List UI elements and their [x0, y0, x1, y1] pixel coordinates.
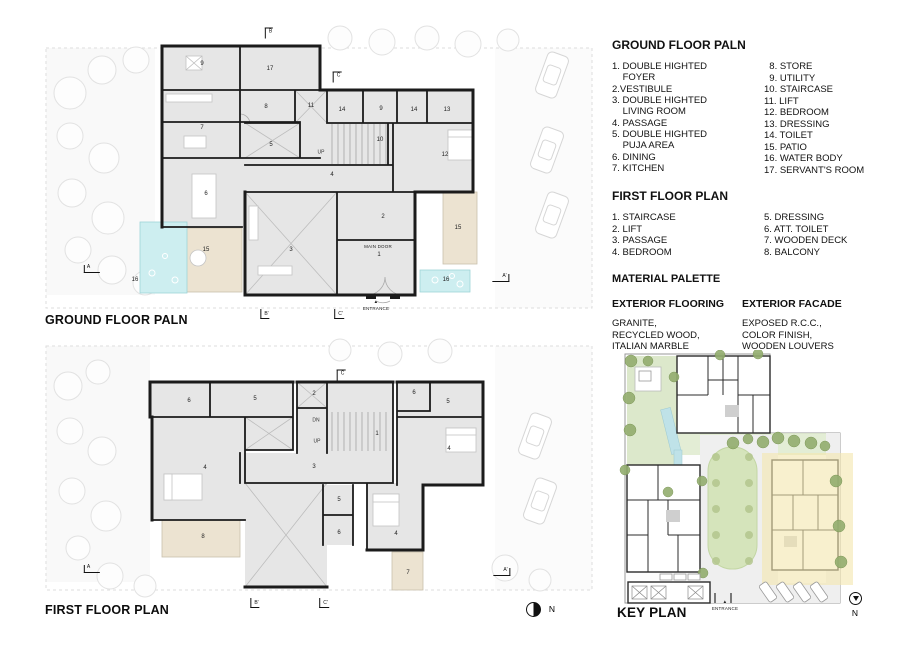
legend-item: 15. PATIO	[764, 142, 910, 153]
north-arrow-icon	[526, 602, 541, 617]
plan-label: 11	[308, 103, 314, 109]
plan-label: DN	[312, 419, 319, 424]
legend-item: 10. STAIRCASE	[764, 84, 910, 95]
plan-label: 4	[447, 446, 450, 452]
legend-gf-title: GROUND FLOOR PALN	[612, 38, 910, 52]
plan-label: 5	[446, 399, 449, 405]
plan-label: C'	[319, 598, 329, 608]
plan-label: 9	[379, 106, 382, 112]
plan-label: 15	[203, 247, 210, 253]
plan-label: A'	[492, 274, 509, 282]
exterior-flooring-title: EXTERIOR FLOORING	[612, 298, 742, 310]
legend-item: 6. ATT. TOILET	[764, 224, 910, 235]
plan-label: 9	[200, 61, 203, 67]
legend-item: 12. BEDROOM	[764, 107, 910, 118]
plan-label: 14	[411, 107, 418, 113]
plan-label: 7	[406, 570, 409, 576]
plan-label: 6	[337, 530, 340, 536]
legend-item: 17. SERVANT'S ROOM	[764, 165, 910, 176]
legend-item: 7. WOODEN DECK	[764, 235, 910, 246]
legend-item: 5. DRESSING	[764, 212, 910, 223]
plan-label: 2	[312, 391, 315, 397]
ground-floor-caption: GROUND FLOOR PALN	[45, 313, 188, 327]
plan-label: 8	[264, 104, 267, 110]
plan-label: N	[549, 605, 555, 614]
plan-label: 4	[330, 172, 333, 178]
plan-label: ENTRANCE	[712, 607, 738, 612]
legend-item: 9. UTILITY	[764, 73, 910, 84]
plan-label: UP	[314, 440, 321, 445]
legend-ff-title: FIRST FLOOR PLAN	[612, 189, 910, 203]
legend-item: 2.VESTIBULE	[612, 84, 764, 95]
legend-item: 16. WATER BODY	[764, 153, 910, 164]
plan-label: 15	[455, 225, 462, 231]
plan-label: MAIN DOOR	[364, 245, 392, 250]
legend-item: 7. KITCHEN	[612, 163, 764, 174]
plan-label: 3	[312, 464, 315, 470]
plan-label: 2	[381, 214, 384, 220]
plan-label: ▲	[374, 300, 379, 305]
plan-label: 14	[339, 107, 346, 113]
plan-label: C	[333, 72, 342, 83]
plan-label: 6	[204, 191, 207, 197]
plan-label: 5	[269, 142, 272, 148]
plan-label: 13	[444, 107, 451, 113]
legend-item: 13. DRESSING	[764, 119, 910, 130]
plan-label: C	[337, 370, 346, 381]
legend-ff-col1: 1. STAIRCASE2. LIFT3. PASSAGE4. BEDROOM	[612, 212, 764, 258]
exterior-flooring-text: GRANITE, RECYCLED WOOD, ITALIAN MARBLE	[612, 318, 742, 353]
legend-item: 2. LIFT	[612, 224, 764, 235]
plan-label: UP	[318, 151, 325, 156]
north-arrow-icon	[849, 592, 862, 605]
plan-label: 4	[394, 531, 397, 537]
plan-label: A	[84, 565, 100, 573]
plan-label: B'	[260, 309, 269, 319]
plan-label: ENTRANCE	[363, 307, 389, 312]
key-plan-panel: ▲ENTRANCEN KEY PLAN	[608, 350, 910, 650]
legend-item: 1. STAIRCASE	[612, 212, 764, 223]
plan-label: 16	[132, 277, 139, 283]
plan-label: 8	[201, 534, 204, 540]
legend-item: 14. TOILET	[764, 130, 910, 141]
legend-item: 8. STORE	[764, 61, 910, 72]
plan-label: 1	[375, 431, 378, 437]
legend-gf-col2: 8. STORE 9. UTILITY10. STAIRCASE11. LIFT…	[764, 61, 910, 176]
legend-item: 3. PASSAGE	[612, 235, 764, 246]
plan-label: C'	[334, 309, 344, 319]
drawing-sheet: 91781114914137510126423115151616UPMAIN D…	[0, 0, 920, 651]
legend: GROUND FLOOR PALN 1. DOUBLE HIGHTED FOYE…	[612, 38, 910, 353]
legend-item: 4. PASSAGE	[612, 118, 764, 129]
legend-item: 4. BEDROOM	[612, 247, 764, 258]
material-palette-title: MATERIAL PALETTE	[612, 273, 910, 285]
plan-label: 7	[200, 125, 203, 131]
ground-floor-labels: 91781114914137510126423115151616UPMAIN D…	[40, 18, 600, 334]
plan-label: 10	[377, 137, 384, 143]
legend-item: 3. DOUBLE HIGHTED LIVING ROOM	[612, 95, 764, 117]
plan-label: B	[265, 28, 273, 39]
plan-label: N	[852, 609, 858, 618]
plan-label: A	[84, 265, 100, 273]
first-floor-caption: FIRST FLOOR PLAN	[45, 603, 169, 617]
legend-item: 1. DOUBLE HIGHTED FOYER	[612, 61, 764, 83]
plan-label: 6	[187, 398, 190, 404]
legend-ff-col2: 5. DRESSING6. ATT. TOILET7. WOODEN DECK8…	[764, 212, 910, 258]
plan-label: B'	[250, 598, 259, 608]
key-plan-caption: KEY PLAN	[617, 605, 687, 620]
first-floor-panel: 65216543456487DNUPCAA'B'C'N FIRST FLOOR …	[40, 336, 600, 618]
plan-label: 1	[377, 252, 380, 258]
legend-item: 8. BALCONY	[764, 247, 910, 258]
exterior-facade-text: EXPOSED R.C.C., COLOR FINISH, WOODEN LOU…	[742, 318, 910, 353]
plan-label: 5	[253, 396, 256, 402]
plan-label: 4	[203, 465, 206, 471]
plan-label: 3	[289, 247, 292, 253]
plan-label: 12	[442, 152, 449, 158]
legend-item: 5. DOUBLE HIGHTED PUJA AREA	[612, 129, 764, 151]
first-floor-labels: 65216543456487DNUPCAA'B'C'N	[40, 336, 600, 618]
legend-item: 11. LIFT	[764, 96, 910, 107]
plan-label: ▲	[723, 600, 728, 605]
plan-label: 17	[267, 66, 274, 72]
plan-label: A'	[493, 568, 510, 576]
plan-label: 6	[412, 390, 415, 396]
plan-label: 16	[443, 277, 450, 283]
legend-gf-col1: 1. DOUBLE HIGHTED FOYER2.VESTIBULE3. DOU…	[612, 61, 764, 176]
plan-label: 5	[337, 497, 340, 503]
ground-floor-panel: 91781114914137510126423115151616UPMAIN D…	[40, 18, 600, 334]
legend-item: 6. DINING	[612, 152, 764, 163]
exterior-facade-title: EXTERIOR FACADE	[742, 298, 910, 310]
